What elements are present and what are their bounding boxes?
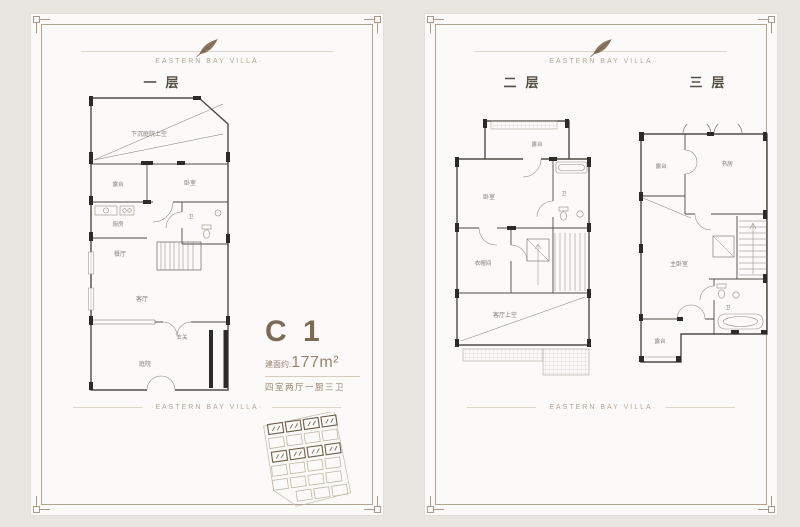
room-label-terrace: 露台: [531, 140, 543, 148]
unit-info: C 1 建面约: 177m² 四室两厅一厨三卫: [265, 317, 375, 393]
corner-ornament: [36, 19, 50, 33]
panel-floor2-3: ·EASTERN BAY VILLA· 二层 三层: [424, 13, 778, 516]
room-label-living-void: 客厅上空: [493, 311, 517, 319]
brand-tagline: ·EASTERN BAY VILLA·: [425, 58, 777, 65]
room-label-study: 书房: [721, 160, 733, 168]
unit-divider: [265, 376, 360, 377]
floor-plan-level1: 下沉庭院上空 露台 卧室 厨房 卫 餐厅 客厅 玄关 庭院: [87, 94, 232, 394]
corner-ornament: [758, 19, 772, 33]
footer-ornament: ·EASTERN BAY VILLA·: [73, 404, 341, 411]
room-label-bedroom: 卧室: [483, 193, 495, 201]
floor-plan-level2: 露台 卧室 卫 衣帽间 客厅上空: [453, 113, 593, 378]
brand-tagline: ·EASTERN BAY VILLA·: [31, 58, 383, 65]
title-floor1: 一层: [101, 72, 221, 91]
floor-plan-level3: 露台 书房 主卧室 卫 露台: [637, 124, 772, 374]
unit-config: 四室两厅一厨三卫: [265, 381, 375, 393]
room-label-bath: 卫: [188, 214, 193, 220]
room-label-bath: 卫: [725, 305, 730, 311]
site-plan: [253, 412, 353, 512]
brand-tagline: ·EASTERN BAY VILLA·: [151, 404, 263, 411]
unit-name: C 1: [265, 317, 375, 347]
corner-ornament: [364, 19, 378, 33]
unit-area-label: 建面约:: [265, 359, 291, 370]
room-label-terrace: 露台: [112, 180, 124, 188]
room-label-terrace-top: 露台: [655, 162, 667, 170]
corner-ornament: [36, 496, 50, 510]
corner-ornament: [430, 19, 444, 33]
room-label-void: 下沉庭院上空: [131, 130, 167, 138]
room-label-bath: 卫: [561, 191, 566, 197]
title-floor3: 三层: [637, 72, 777, 91]
title-floor2: 二层: [451, 72, 591, 91]
corner-ornament: [758, 496, 772, 510]
room-label-living: 客厅: [136, 295, 148, 303]
room-label-courtyard: 庭院: [139, 360, 151, 368]
room-label-terrace-bottom: 露台: [654, 337, 666, 345]
room-label-foyer: 玄关: [176, 333, 188, 341]
footer-ornament: ·EASTERN BAY VILLA·: [467, 404, 735, 411]
room-label-dining: 餐厅: [114, 250, 126, 258]
brand-tagline: ·EASTERN BAY VILLA·: [545, 404, 657, 411]
corner-ornament: [430, 496, 444, 510]
room-label-bedroom: 卧室: [184, 179, 196, 187]
room-label-master: 主卧室: [670, 260, 688, 268]
brochure-page: ·EASTERN BAY VILLA· 一层: [0, 0, 800, 527]
room-label-kitchen: 厨房: [112, 220, 124, 228]
corner-ornament: [364, 496, 378, 510]
unit-area-value: 177m²: [291, 354, 339, 372]
panel-floor1: ·EASTERN BAY VILLA· 一层: [30, 13, 384, 516]
room-label-cloakroom: 衣帽间: [475, 259, 492, 267]
